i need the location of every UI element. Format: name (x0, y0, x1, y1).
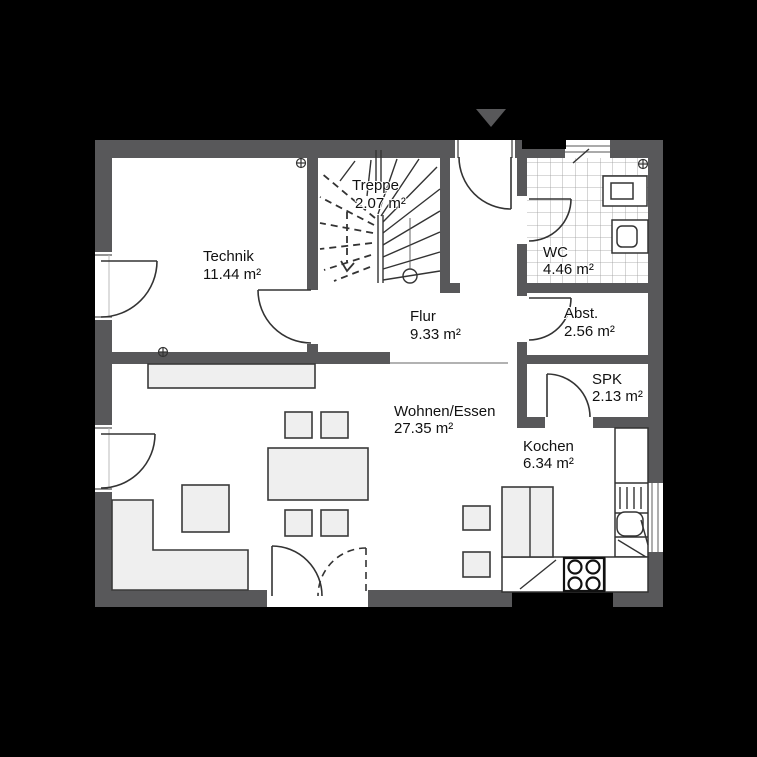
wall-spk-bottom-left (517, 417, 545, 428)
room-label-abst: Abst. (564, 305, 598, 322)
wall-bottom-left (95, 590, 267, 607)
floor-plan: Technik 11.44 m² Treppe 2.07 m² WC 4.46 … (0, 0, 757, 757)
room-area-kochen: 6.34 m² (523, 455, 574, 472)
wc-window (565, 140, 610, 158)
room-label-kochen: Kochen (523, 438, 574, 455)
chair (321, 412, 348, 438)
room-area-technik: 11.44 m² (203, 266, 261, 283)
room-label-spk: SPK (592, 371, 622, 388)
wall-divider-c (517, 342, 527, 428)
chair (321, 510, 348, 536)
kitchen-window (648, 483, 663, 552)
sideboard (148, 364, 315, 388)
room-label-flur: Flur (410, 308, 436, 325)
room-area-flur: 9.33 m² (410, 326, 461, 343)
chair (285, 412, 312, 438)
wall-bottom-mid (368, 590, 512, 607)
wall-stair-right (440, 158, 450, 283)
stool (463, 506, 490, 530)
coffee-table (182, 485, 229, 532)
room-area-abst: 2.56 m² (564, 323, 615, 340)
room-label-technik: Technik (203, 248, 254, 265)
wall-stair-left (307, 158, 318, 290)
kitchen-sink (617, 512, 643, 536)
room-area-treppe: 2.07 m² (355, 195, 406, 212)
wall-divider-a (517, 158, 527, 196)
wall-flur-wohnen (98, 352, 390, 364)
entrance-arrow-icon (476, 109, 506, 127)
wall-abst-spk (517, 355, 648, 364)
entrance-opening (455, 140, 515, 158)
floor-plan-canvas: Technik 11.44 m² Treppe 2.07 m² WC 4.46 … (0, 0, 757, 757)
socket-icon (297, 159, 306, 168)
dining-table (268, 448, 368, 500)
wall-left (95, 140, 112, 607)
wall-stair-right-stub (440, 283, 460, 293)
room-area-spk: 2.13 m² (592, 388, 643, 405)
room-area-wc: 4.46 m² (543, 261, 594, 278)
socket-icon (159, 348, 168, 357)
wc-toilet-bowl (617, 226, 637, 247)
room-label-wohnen: Wohnen/Essen (394, 403, 495, 420)
wc-sink-basin (611, 183, 633, 199)
chair (285, 510, 312, 536)
wall-notch (522, 140, 566, 149)
room-label-wc: WC (543, 244, 568, 261)
wall-spk-bottom-right (593, 417, 648, 428)
room-label-treppe: Treppe (352, 177, 399, 194)
room-area-wohnen: 27.35 m² (394, 420, 453, 437)
socket-icon (639, 160, 648, 169)
wall-wc-bottom (517, 283, 653, 293)
kitchen-tall-units (502, 487, 553, 557)
stool (463, 552, 490, 577)
